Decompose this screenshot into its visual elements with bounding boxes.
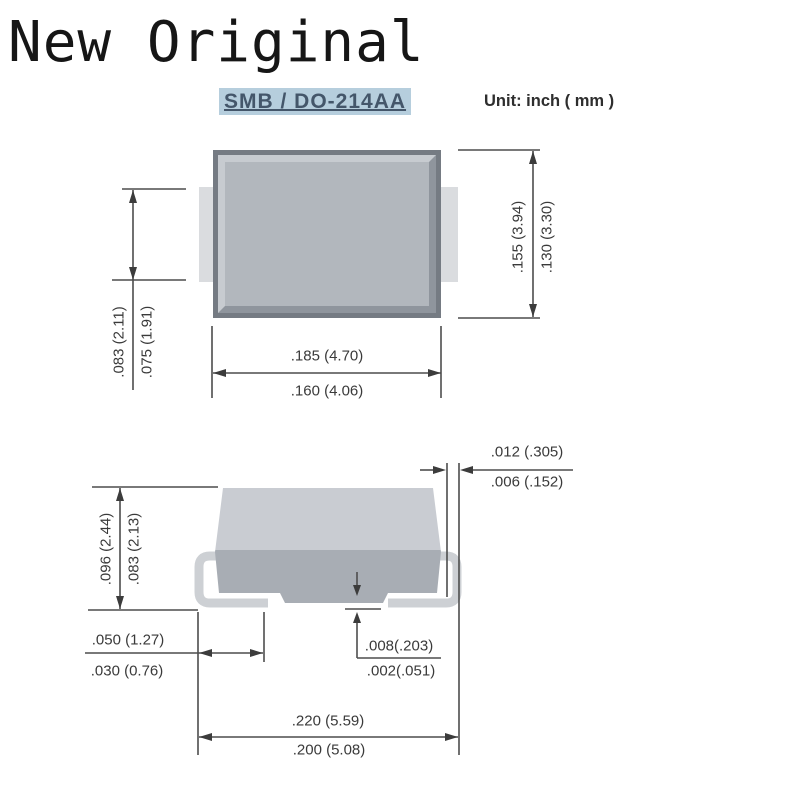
dim-standoff-min: .002(.051)	[367, 663, 435, 680]
arrow-left	[199, 733, 212, 741]
dim-terminal-width-min: .075 (1.91)	[139, 306, 156, 379]
arrow-down	[116, 596, 124, 609]
arrow-right	[250, 649, 263, 657]
arrow-up	[116, 488, 124, 501]
arrow-left	[460, 466, 473, 474]
side-view-body	[215, 488, 441, 603]
dim-body-height-max: .155 (3.94)	[510, 201, 527, 274]
dim-lead-thickness-min: .006 (.152)	[491, 474, 564, 491]
arrow-down	[129, 267, 137, 280]
dim-terminal-length-max: .050 (1.27)	[92, 632, 165, 649]
dim-overall-width-max: .220 (5.59)	[292, 713, 365, 730]
dim-standoff-max: .008(.203)	[365, 638, 433, 655]
dimension-annotations	[0, 0, 800, 800]
arrow-right	[445, 733, 458, 741]
arrow-left	[199, 649, 212, 657]
arrow-up	[529, 151, 537, 164]
dim-lead-thickness-max: .012 (.305)	[491, 444, 564, 461]
dim-body-height-min: .130 (3.30)	[539, 201, 556, 274]
arrow-down	[529, 304, 537, 317]
dim-body-thickness-min: .083 (2.13)	[126, 513, 143, 586]
dim-body-thickness-max: .096 (2.44)	[98, 513, 115, 586]
arrow-right	[428, 369, 441, 377]
arrow-right	[433, 466, 446, 474]
arrow-up	[353, 612, 361, 623]
arrow-up	[129, 190, 137, 203]
dim-body-width-max: .185 (4.70)	[291, 348, 364, 365]
dim-terminal-width-max: .083 (2.11)	[111, 306, 128, 377]
package-dimension-drawing: New Original SMB / DO-214AA Unit: inch (…	[0, 0, 800, 800]
arrow-left	[213, 369, 226, 377]
dim-body-width-min: .160 (4.06)	[291, 383, 364, 400]
dim-overall-width-min: .200 (5.08)	[293, 742, 366, 759]
dim-terminal-length-min: .030 (0.76)	[91, 663, 164, 680]
